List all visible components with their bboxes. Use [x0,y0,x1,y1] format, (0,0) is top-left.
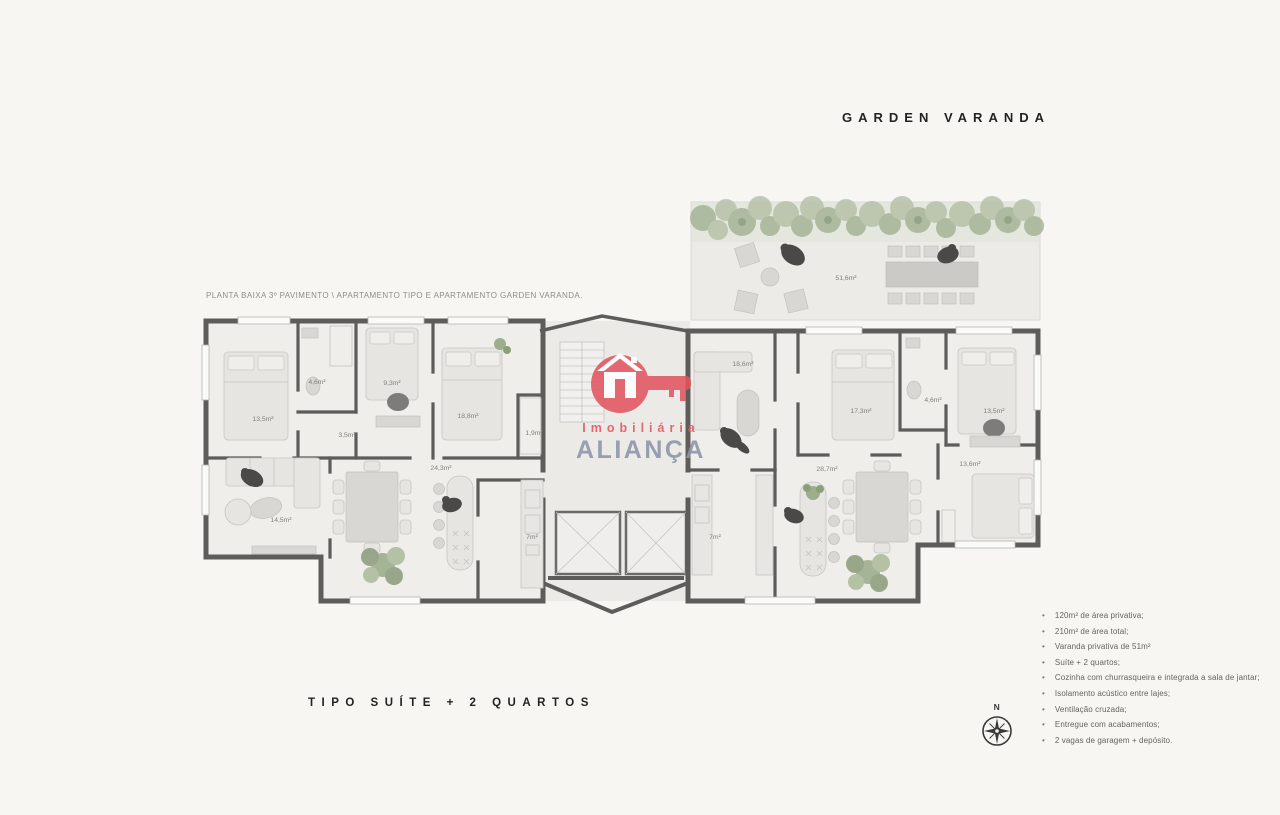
feature-item: •Suíte + 2 quartos; [1042,659,1274,667]
room-area-label: 51,6m² [835,275,857,282]
bullet-icon: • [1042,737,1045,745]
compass: N [975,702,1019,764]
bullet-icon: • [1042,690,1045,698]
room-area-label: 28,7m² [816,466,838,473]
feature-item: •120m² de área privativa; [1042,612,1274,620]
feature-item: •Isolamento acústico entre lajes; [1042,690,1274,698]
room-area-label: 24,3m² [430,465,452,472]
bullet-icon: • [1042,643,1045,651]
room-area-label: 13,5m² [983,408,1005,415]
bullet-icon: • [1042,659,1045,667]
bullet-icon: • [1042,612,1045,620]
bullet-icon: • [1042,721,1045,729]
feature-item: •Entregue com acabamentos; [1042,721,1274,729]
room-area-label: 14,5m² [270,517,292,524]
room-area-label: 7m² [526,534,538,541]
room-area-label: 13,5m² [252,416,274,423]
room-area-label: 4,6m² [308,379,326,386]
feature-item: •2 vagas de garagem + depósito. [1042,737,1274,745]
feature-item: •210m² de área total; [1042,628,1274,636]
unit-type-label: TIPO SUÍTE + 2 QUARTOS [308,697,595,709]
room-area-label: 9,3m² [383,380,401,387]
room-area-label: 7m² [709,534,721,541]
feature-item: •Cozinha com churrasqueira e integrada a… [1042,674,1274,682]
feature-item: •Ventilação cruzada; [1042,706,1274,714]
floor-plan: 51,6m² 13,5m² 4,6m² 9,3m² 3,5m² 18,8m² 1… [200,195,1045,615]
bullet-icon: • [1042,706,1045,714]
page-title: GARDEN VARANDA [842,110,1050,125]
room-area-label: 18,6m² [732,361,754,368]
feature-item: •Varanda privativa de 51m² [1042,643,1274,651]
garden-terrace [690,196,1044,320]
page: GARDEN VARANDA PLANTA BAIXA 3º PAVIMENTO… [0,0,1280,815]
compass-rose-icon [980,714,1014,748]
bullet-icon: • [1042,674,1045,682]
room-area-label: 13,6m² [959,461,981,468]
room-area-label: 4,6m² [924,397,942,404]
room-area-label: 18,8m² [457,413,479,420]
room-area-label: 3,5m² [338,432,356,439]
room-area-label: 17,3m² [850,408,872,415]
room-area-label: 1,9m² [525,430,543,437]
terrace-dining-table [886,246,978,304]
compass-north-label: N [994,702,1001,712]
bullet-icon: • [1042,628,1045,636]
features-list: •120m² de área privativa; •210m² de área… [1042,612,1274,752]
